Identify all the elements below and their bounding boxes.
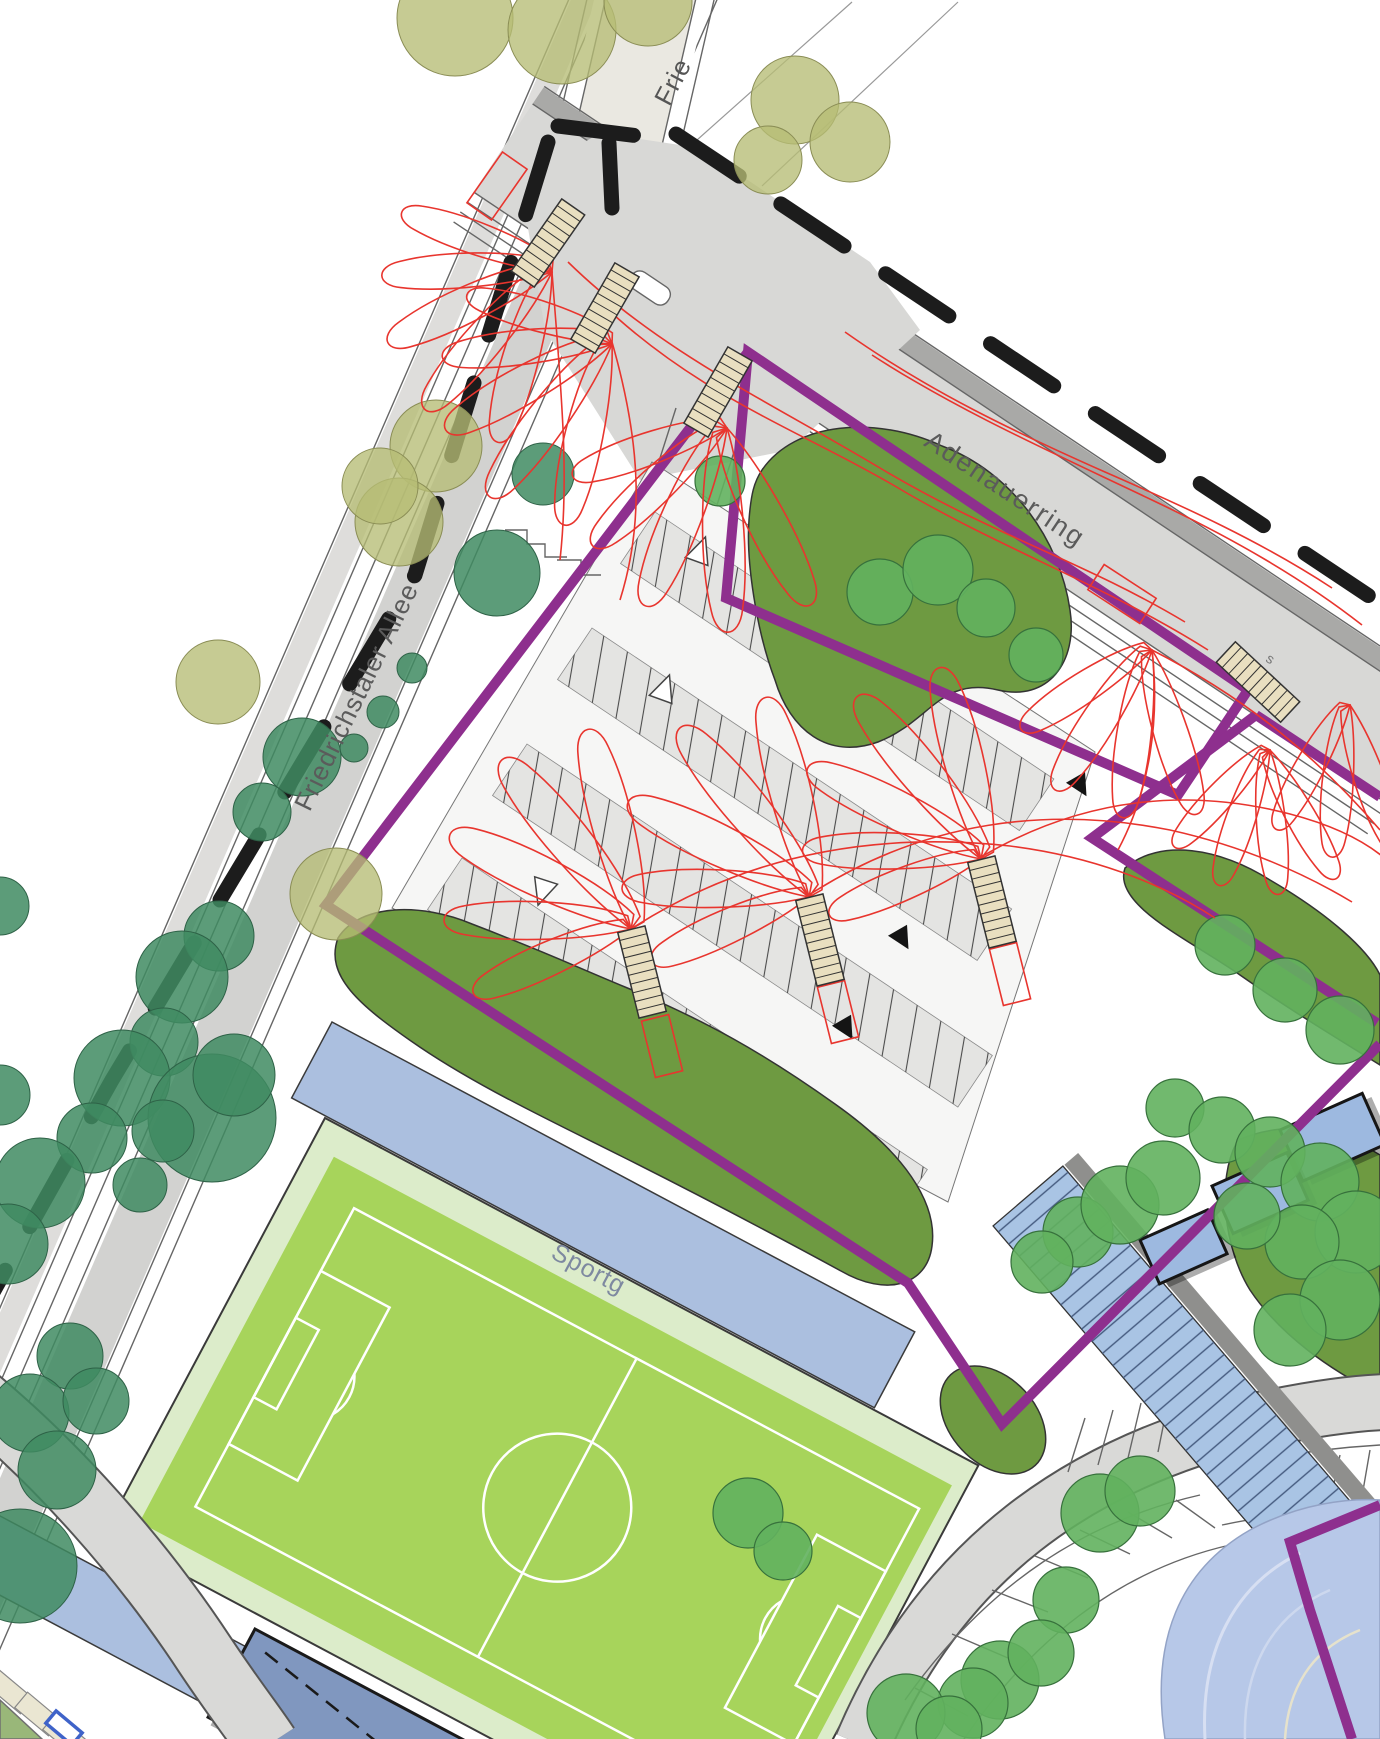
site-plan-page: { "map": { "title": "site-plan", "labels… — [0, 0, 1380, 1739]
site-plan-svg — [0, 0, 1380, 1739]
stadium-area — [1161, 1500, 1380, 1739]
